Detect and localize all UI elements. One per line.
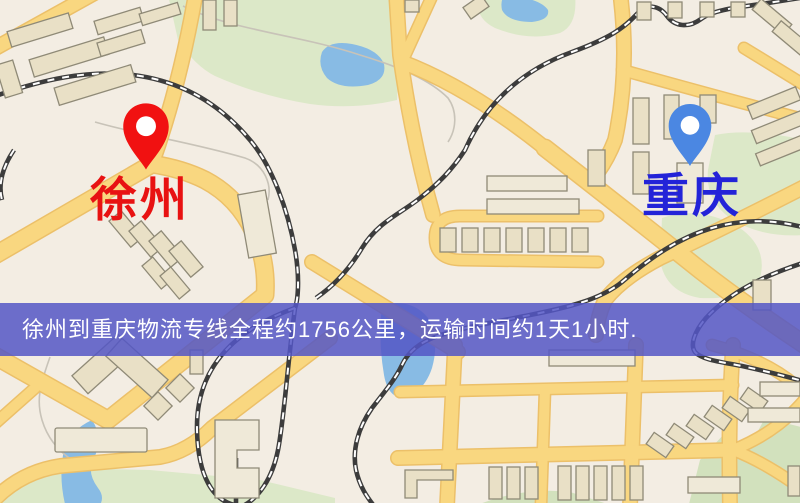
route-info-banner: 徐州到重庆物流专线全程约1756公里，运输时间约1天1小时.: [0, 303, 800, 356]
origin-city-label: 徐州: [90, 178, 190, 225]
route-info-text: 徐州到重庆物流专线全程约1756公里，运输时间约1天1小时.: [0, 303, 800, 356]
blue-map-pin-icon: [665, 102, 715, 169]
red-map-pin-icon: [120, 100, 172, 174]
destination-city-label: 重庆: [642, 174, 742, 221]
map-canvas: [0, 0, 800, 503]
map-image: 徐州 重庆 徐州到重庆物流专线全程约1756公里，运输时间约1天1小时.: [0, 0, 800, 503]
